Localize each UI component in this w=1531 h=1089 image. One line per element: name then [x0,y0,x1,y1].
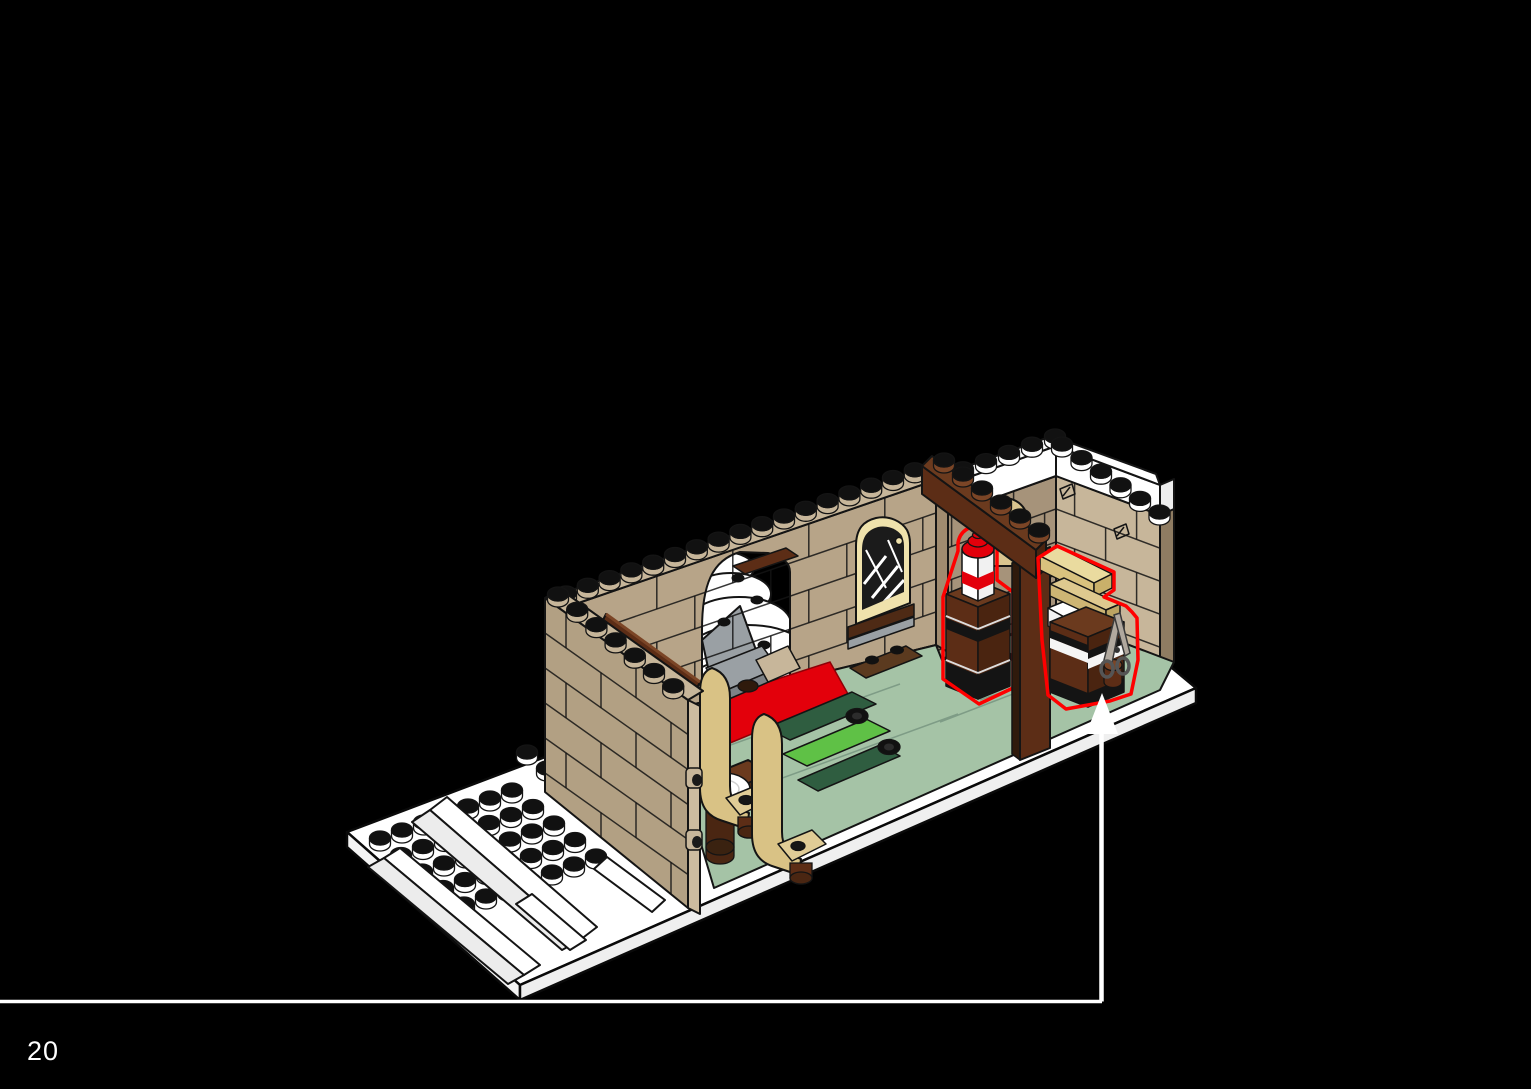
page-number: 20 [27,1036,59,1067]
window-clip-hole [896,538,903,545]
wall-cut-edge [688,700,700,914]
lattice-window [848,517,914,649]
wing-end-cap [1160,509,1174,668]
lego-model-illustration [0,0,1531,1089]
brown-mug [738,680,758,692]
instruction-page: 20 [0,0,1531,1089]
